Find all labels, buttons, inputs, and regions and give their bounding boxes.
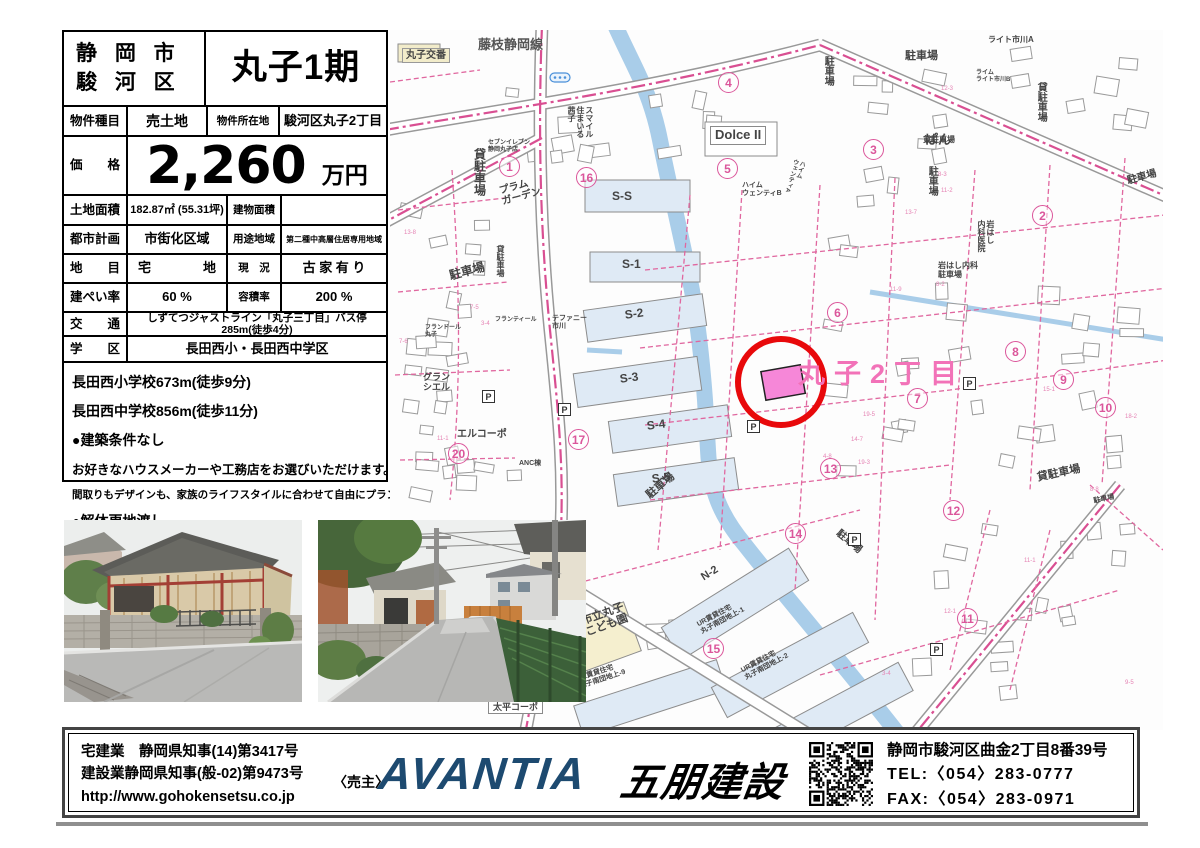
map-label-21: 岩はし内科 駐車場 <box>938 262 978 280</box>
footer-frame: 宅建業 静岡県知事(14)第3417号 建設業静岡県知事(般-02)第9473号… <box>68 733 1134 812</box>
city-ward-label: 静 岡 市 駿 河 区 <box>64 32 206 105</box>
price-unit: 万円 <box>322 162 368 188</box>
map-label-9: ハイム ウェンティB <box>742 182 782 198</box>
map-label-2: 貸駐車場 <box>472 148 485 196</box>
building-area-label: 建物面積 <box>228 196 282 224</box>
svg-text:13-8: 13-8 <box>404 230 417 236</box>
map-marker-17: 17 <box>568 429 589 450</box>
map-marker-5: 5 <box>717 158 738 179</box>
map-marker-13: 13 <box>820 458 841 479</box>
type-value: 売土地 <box>128 107 208 135</box>
parking-icon-2: P <box>747 420 760 433</box>
parking-icon-5: P <box>848 533 861 546</box>
bottom-rule <box>56 822 1148 826</box>
map-marker-20: 20 <box>448 443 469 464</box>
map-label-25: S-3 <box>619 370 639 386</box>
map-marker-12: 12 <box>943 500 964 521</box>
property-info-panel: 静 岡 市 駿 河 区 丸子1期 物件種目 売土地 物件所在地 駿河区丸子2丁目… <box>62 30 388 482</box>
map-label-18: 駐車場 <box>926 166 937 196</box>
note-line-3: お好きなハウスメーカーや工務店をお選びいただけます。 <box>72 459 378 478</box>
current-status-value: 古 家 有 り <box>282 255 386 282</box>
note-line-1: 長田西中学校856m(徒歩11分) <box>72 401 378 421</box>
company-footer: 宅建業 静岡県知事(14)第3417号 建設業静岡県知事(般-02)第9473号… <box>62 727 1140 818</box>
map-label-17: 貸駐車場 <box>923 136 955 145</box>
price-value: 2,260 万円 <box>128 137 386 194</box>
ward-label: 駿 河 区 <box>76 71 181 95</box>
map-marker-6: 6 <box>827 302 848 323</box>
svg-text:12-3: 12-3 <box>941 86 954 92</box>
map-marker-4: 4 <box>718 72 739 93</box>
zoning-label: 用途地域 <box>228 226 282 253</box>
land-category-label: 地 目 <box>64 255 128 282</box>
svg-text:19-3: 19-3 <box>858 460 871 466</box>
company-name: 五朋建設 <box>617 750 789 808</box>
svg-text:9-5: 9-5 <box>1125 680 1134 686</box>
map-marker-14: 14 <box>785 523 806 544</box>
access-label: 交 通 <box>64 313 128 335</box>
price-amount: 2,260 <box>146 137 305 194</box>
svg-text:11-2: 11-2 <box>941 188 953 194</box>
map-marker-9: 9 <box>1053 369 1074 390</box>
note-line-4: 間取りもデザインも、家族のライフスタイルに合わせて自由にプランニング。 <box>72 487 378 502</box>
map-label-12: ライト市川A <box>988 36 1034 45</box>
map-label-15: 駐車場 <box>822 56 833 86</box>
license-line-1: 宅建業 静岡県知事(14)第3417号 <box>81 741 303 763</box>
svg-text:11-1: 11-1 <box>437 436 449 442</box>
location-value: 駿河区丸子2丁目 <box>280 107 386 135</box>
property-photo-house <box>64 520 302 702</box>
qr-code <box>809 742 873 806</box>
map-label-28: テファニー 市川 <box>552 315 587 331</box>
map-marker-1: 1 <box>499 156 520 177</box>
map-label-29: フランティール <box>495 317 537 324</box>
map-label-26: S-4 <box>646 417 666 433</box>
notes-section: 長田西小学校673m(徒歩9分)長田西中学校856m(徒歩11分)●建築条件なし… <box>64 363 386 544</box>
land-area-label: 土地面積 <box>64 196 128 224</box>
map-label-14: 駐車場 <box>905 50 938 62</box>
land-area-value: 182.87㎡ (55.31坪) <box>128 196 228 224</box>
map-label-24: S-2 <box>624 306 644 322</box>
svg-text:14-7: 14-7 <box>851 437 864 443</box>
location-label: 物件所在地 <box>208 107 280 135</box>
school-district-label: 学 区 <box>64 337 128 361</box>
svg-text:15-1: 15-1 <box>1043 387 1056 393</box>
license-block: 宅建業 静岡県知事(14)第3417号 建設業静岡県知事(般-02)第9473号… <box>81 741 303 808</box>
company-fax: FAX:〈054〉283-0971 <box>887 788 1107 813</box>
coverage-ratio-label: 建ぺい率 <box>64 284 128 311</box>
svg-text:13-7: 13-7 <box>905 210 918 216</box>
school-district-value: 長田西小・長田西中学区 <box>128 337 386 361</box>
map-marker-16: 16 <box>576 167 597 188</box>
floor-ratio-value: 200 % <box>282 284 386 311</box>
city-plan-label: 都市計画 <box>64 226 128 253</box>
note-line-0: 長田西小学校673m(徒歩9分) <box>72 372 378 392</box>
svg-text:12-1: 12-1 <box>944 609 957 615</box>
flyer-page: 静 岡 市 駿 河 区 丸子1期 物件種目 売土地 物件所在地 駿河区丸子2丁目… <box>0 0 1200 848</box>
svg-text:3-4: 3-4 <box>481 321 490 327</box>
map-label-16: 貸駐車場 <box>1035 82 1046 122</box>
map-marker-7: 7 <box>907 388 928 409</box>
area-name-label: 丸子2丁目 <box>798 352 966 391</box>
map-marker-2: 2 <box>1032 205 1053 226</box>
contact-block: 静岡市駿河区曲金2丁目8番39号 TEL:〈054〉283-0777 FAX:〈… <box>887 739 1107 813</box>
parking-icon-4: P <box>930 643 943 656</box>
map-label-43: 太平コーポ <box>488 700 543 714</box>
note-line-2: ●建築条件なし <box>72 430 378 450</box>
price-label: 価 格 <box>64 137 128 194</box>
city-plan-value: 市街化区域 <box>128 226 228 253</box>
map-label-3: 貸駐車場 <box>495 245 504 277</box>
floor-ratio-label: 容積率 <box>228 284 282 311</box>
map-label-32: エルコーポ <box>457 429 507 440</box>
svg-text:8-2: 8-2 <box>936 282 945 288</box>
svg-text:11-1: 11-1 <box>1024 558 1036 564</box>
house-photo-drawing <box>64 520 302 702</box>
map-label-6: セブンイレブン 静岡丸子店 <box>488 140 530 153</box>
map-label-31: グラン シエル <box>423 372 450 392</box>
company-address: 静岡市駿河区曲金2丁目8番39号 <box>887 739 1107 763</box>
company-tel: TEL:〈054〉283-0777 <box>887 763 1107 788</box>
map-label-23: S-1 <box>622 258 641 271</box>
company-url[interactable]: http://www.gohokensetsu.co.jp <box>81 786 303 808</box>
map-marker-3: 3 <box>863 139 884 160</box>
access-value: しずてつジャストライン「丸子三丁目」バス停285m(徒歩4分) <box>128 313 386 335</box>
license-line-2: 建設業静岡県知事(般-02)第9473号 <box>81 763 303 785</box>
map-marker-10: 10 <box>1095 397 1116 418</box>
map-marker-8: 8 <box>1005 341 1026 362</box>
current-status-label: 現 況 <box>228 255 282 282</box>
map-label-8: Dolce II <box>710 126 766 145</box>
svg-text:8-8: 8-8 <box>1090 487 1099 493</box>
svg-text:7-5: 7-5 <box>470 305 479 311</box>
map-marker-11: 11 <box>957 608 978 629</box>
property-photo-street <box>318 520 586 702</box>
city-label: 静 岡 市 <box>76 42 181 66</box>
project-title: 丸子1期 <box>206 32 386 105</box>
map-label-20: 岩はし 内科医院 <box>976 220 994 252</box>
building-area-value <box>282 196 386 224</box>
zoning-value: 第二種中高層住居専用地域 <box>282 226 386 253</box>
street-photo-drawing <box>318 520 586 702</box>
map-label-33: ANC棟 <box>519 460 541 468</box>
svg-text:8-3: 8-3 <box>938 172 947 178</box>
map-label-7: スマイル 住まいる 茜子 <box>566 106 593 138</box>
bus-stop-icon <box>550 73 570 82</box>
parking-icon-1: P <box>558 403 571 416</box>
svg-text:18-2: 18-2 <box>1125 414 1138 420</box>
svg-text:19-5: 19-5 <box>863 412 876 418</box>
avantia-logo: AVANTIA <box>376 748 589 800</box>
type-label: 物件種目 <box>64 107 128 135</box>
map-label-30: フランドール 丸子 <box>425 325 461 338</box>
svg-text:3-4: 3-4 <box>882 671 891 677</box>
map-label-13: ライム ライト市川B <box>976 70 1010 83</box>
coverage-ratio-value: 60 % <box>128 284 228 311</box>
svg-text:11-9: 11-9 <box>890 287 902 293</box>
map-label-22: S-S <box>612 190 632 203</box>
svg-text:7-6: 7-6 <box>399 339 408 345</box>
map-label-1: 丸子交番 <box>402 48 450 63</box>
map-marker-15: 15 <box>703 638 724 659</box>
parking-icon-0: P <box>482 390 495 403</box>
land-category-value: 宅 地 <box>128 255 228 282</box>
map-label-0: 藤枝静岡線 <box>478 38 543 53</box>
